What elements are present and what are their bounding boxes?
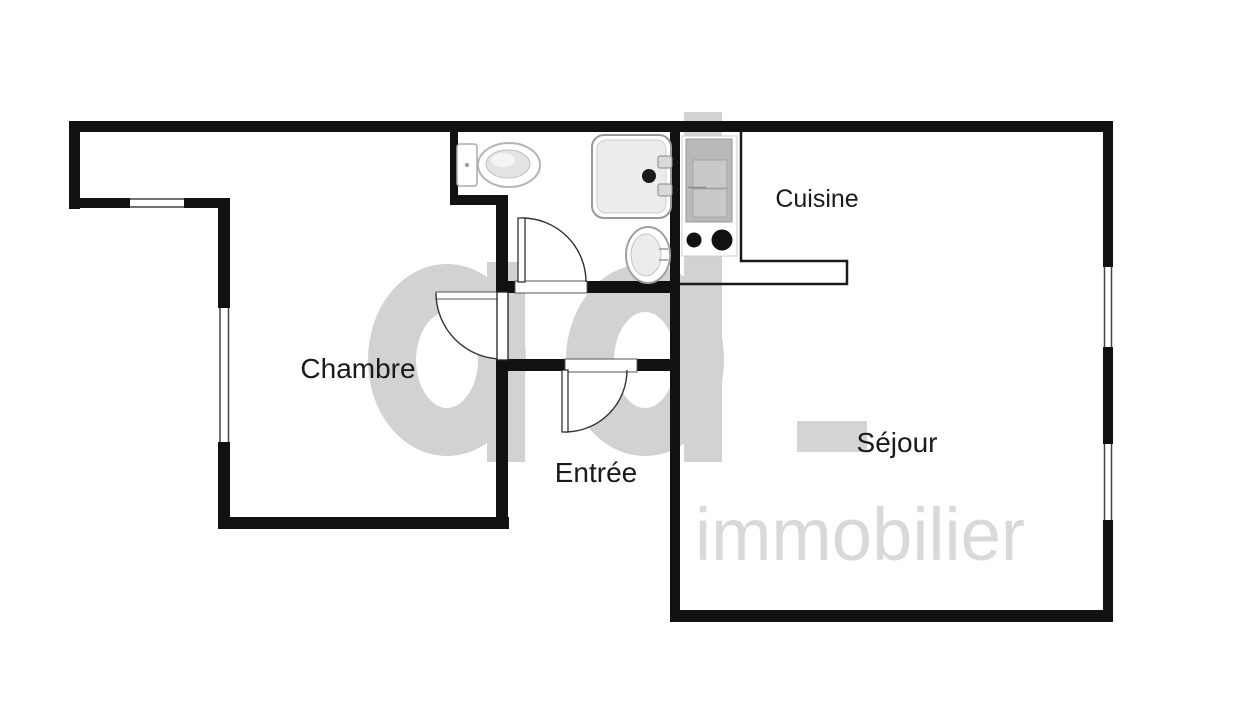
sejour-window-upper <box>1103 267 1113 347</box>
sejour-label: Séjour <box>857 427 938 458</box>
entree-label: Entrée <box>555 457 638 488</box>
shower-icon <box>592 135 672 218</box>
chambre-door-leaf <box>497 292 508 360</box>
wall-left-upper <box>69 121 80 209</box>
entree-door-leaf <box>562 370 568 432</box>
bathroom-door-threshold <box>515 281 587 293</box>
cuisine-label: Cuisine <box>775 185 858 213</box>
notch-window <box>130 198 184 208</box>
toilet-icon <box>457 143 540 187</box>
sejour-window-lower <box>1103 444 1113 520</box>
wall-chambre-bottom <box>218 517 509 529</box>
wall-chambre-entree <box>496 360 508 529</box>
wall-right <box>1103 121 1113 622</box>
wall-top <box>69 121 1113 132</box>
chambre-label: Chambre <box>300 353 415 384</box>
floor-plan-svg: immobilier <box>0 0 1240 720</box>
floor-plan-page: immobilier <box>0 0 1240 720</box>
chambre-door-threshold <box>436 292 499 299</box>
bathroom-door-leaf <box>518 218 525 282</box>
wall-sejour-bottom <box>670 610 1113 622</box>
watermark-word: immobilier <box>695 493 1025 576</box>
entree-door-threshold <box>565 359 637 372</box>
washbasin-icon <box>626 227 670 283</box>
wall-bath-west-lower <box>496 195 508 293</box>
chambre-window <box>218 308 230 442</box>
